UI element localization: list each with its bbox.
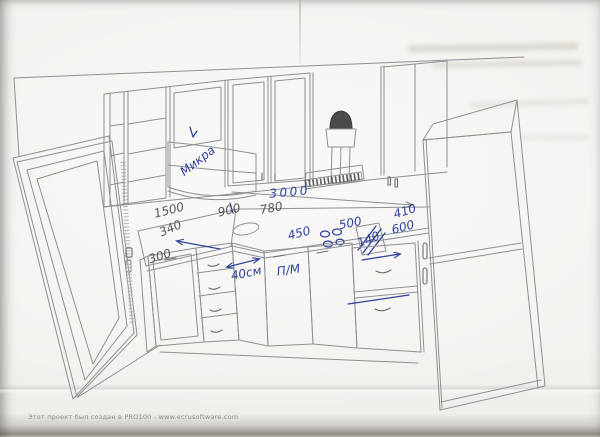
dim-780-label: 780	[259, 199, 285, 217]
pro100-watermark: Этот проект был создан в PRO100 - www.ec…	[28, 413, 238, 421]
pen-check-mark	[190, 127, 197, 137]
two-drawer-unit	[348, 241, 424, 352]
hood-duct-collar	[326, 129, 356, 147]
sink-oval	[232, 221, 260, 237]
floor-line	[78, 345, 160, 397]
fridge-handle	[423, 268, 427, 284]
appliance-label: П/М	[276, 261, 302, 278]
cabinet-handle	[395, 179, 398, 187]
base-cabinet-under-cooktop	[308, 243, 357, 348]
entrance-door	[13, 136, 160, 399]
upper-shelf-unit-left	[104, 87, 166, 207]
cabinet-handle	[317, 251, 328, 253]
fridge-handle	[423, 243, 427, 259]
tall-fridge-cabinet	[423, 100, 545, 410]
hood-duct-elbow	[330, 111, 352, 129]
kitchen-sketch: 1500 900 780 340 300 3000 450 500 410 60…	[0, 0, 600, 437]
dim-3000-label: 3000	[269, 183, 311, 200]
corner-angled-cabinet	[227, 243, 268, 346]
drawer-handles	[375, 270, 391, 311]
plinth-line	[160, 352, 418, 363]
dimension-line-3000	[230, 192, 412, 213]
dim-900-label: 900	[216, 201, 242, 220]
dim-340-label: 340	[157, 217, 184, 239]
microwave-label: Микра	[177, 143, 217, 179]
upper-cabinet-center	[228, 73, 313, 186]
countertop	[138, 207, 429, 271]
drawer-unit	[196, 243, 239, 342]
hood-niche	[304, 66, 384, 189]
appliance-door	[264, 247, 313, 346]
dim-40cm-label: 40см	[230, 263, 263, 283]
upper-cabinet-middle	[166, 80, 228, 198]
dim-300-label: 300	[147, 246, 173, 266]
scanned-paper: 1500 900 780 340 300 3000 450 500 410 60…	[0, 0, 600, 437]
fridge-top-line	[429, 243, 522, 264]
dim-600-label: 600	[390, 217, 416, 237]
dim-1500-label: 1500	[153, 200, 186, 221]
drawer-handles	[208, 264, 222, 332]
pen-stroke	[348, 295, 409, 304]
dim-500-label: 500	[338, 214, 364, 232]
dim-450-label: 450	[286, 223, 312, 242]
